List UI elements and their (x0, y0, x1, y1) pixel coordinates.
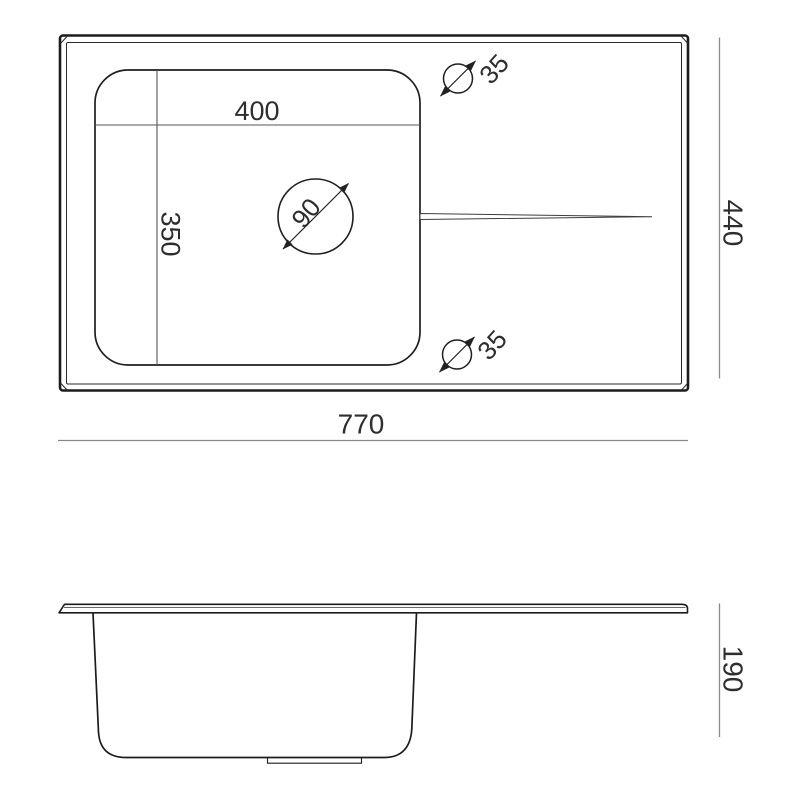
faucet-hole-top-label: 35 (473, 48, 515, 90)
faucet-hole-top-diameter-line (441, 61, 476, 96)
sink-drawing-svg: 400 350 90 35 35 770 440 190 (0, 0, 788, 800)
overall-width-label: 770 (338, 409, 385, 440)
rim-profile (59, 604, 688, 613)
sink-outer-edge (60, 36, 688, 391)
overall-depth-label: 440 (718, 200, 749, 247)
top-view: 400 350 90 35 35 (60, 36, 688, 391)
drain-diameter-label: 90 (285, 192, 327, 233)
bowl-height-label: 190 (718, 646, 749, 693)
sink-technical-drawing-page: 400 350 90 35 35 770 440 190 (0, 0, 788, 800)
drainboard-groove (420, 214, 652, 220)
bowl-profile (93, 613, 417, 758)
drain-flange (268, 758, 362, 764)
corner-bevel-top-left (61, 37, 67, 44)
faucet-hole-bottom-label: 35 (471, 324, 513, 366)
side-view: 190 (59, 604, 749, 764)
bowl-length-label: 350 (156, 211, 186, 256)
bowl-width-label: 400 (234, 96, 279, 126)
faucet-hole-bottom-diameter-line (440, 337, 475, 372)
